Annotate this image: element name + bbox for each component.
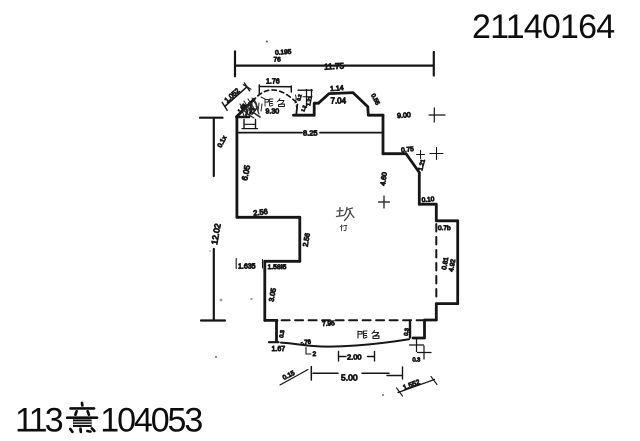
svg-text:1.76: 1.76 [266,79,280,86]
svg-text:21140164: 21140164 [472,8,614,46]
svg-text:0.3: 0.3 [279,330,286,339]
svg-text:9.00: 9.00 [397,112,411,120]
svg-text:1.552: 1.552 [402,379,421,392]
svg-text:104053: 104053 [100,402,202,440]
svg-text:0.10: 0.10 [421,196,435,204]
svg-text:8.25: 8.25 [303,129,318,138]
svg-text:0.3: 0.3 [413,358,421,364]
svg-text:2: 2 [313,351,317,358]
svg-text:2.00: 2.00 [347,353,362,362]
svg-text:1.67: 1.67 [272,346,286,353]
svg-text:7.95: 7.95 [322,320,335,328]
svg-text:1.58I5: 1.58I5 [268,264,287,271]
svg-text:0.7b: 0.7b [438,225,451,232]
svg-text:1.052: 1.052 [224,87,242,104]
svg-text:76: 76 [274,57,282,64]
svg-text:1.21: 1.21 [418,158,427,171]
svg-text:0.1x: 0.1x [217,134,229,149]
svg-text:6.05: 6.05 [240,164,252,182]
svg-text:0.55: 0.55 [369,93,380,107]
svg-text:1.21: 1.21 [306,96,314,107]
svg-text:5.00: 5.00 [341,373,358,383]
svg-text:11.75: 11.75 [324,61,345,72]
svg-text:113: 113 [15,402,63,440]
svg-text:12.02: 12.02 [209,222,223,245]
svg-text:2.56: 2.56 [303,233,312,248]
svg-text:2.56: 2.56 [253,207,269,218]
svg-text:1.635: 1.635 [238,264,256,271]
svg-text:1.14: 1.14 [330,85,344,93]
svg-text:9.30: 9.30 [266,109,280,116]
svg-text:4.60: 4.60 [380,172,389,187]
svg-text:3.05: 3.05 [269,288,278,303]
svg-text:4.92: 4.92 [448,258,457,272]
svg-text:0.75: 0.75 [401,146,415,154]
svg-text:0.2: 0.2 [296,93,303,101]
svg-text:-.76: -.76 [300,339,312,346]
svg-text:7.04: 7.04 [331,97,347,106]
